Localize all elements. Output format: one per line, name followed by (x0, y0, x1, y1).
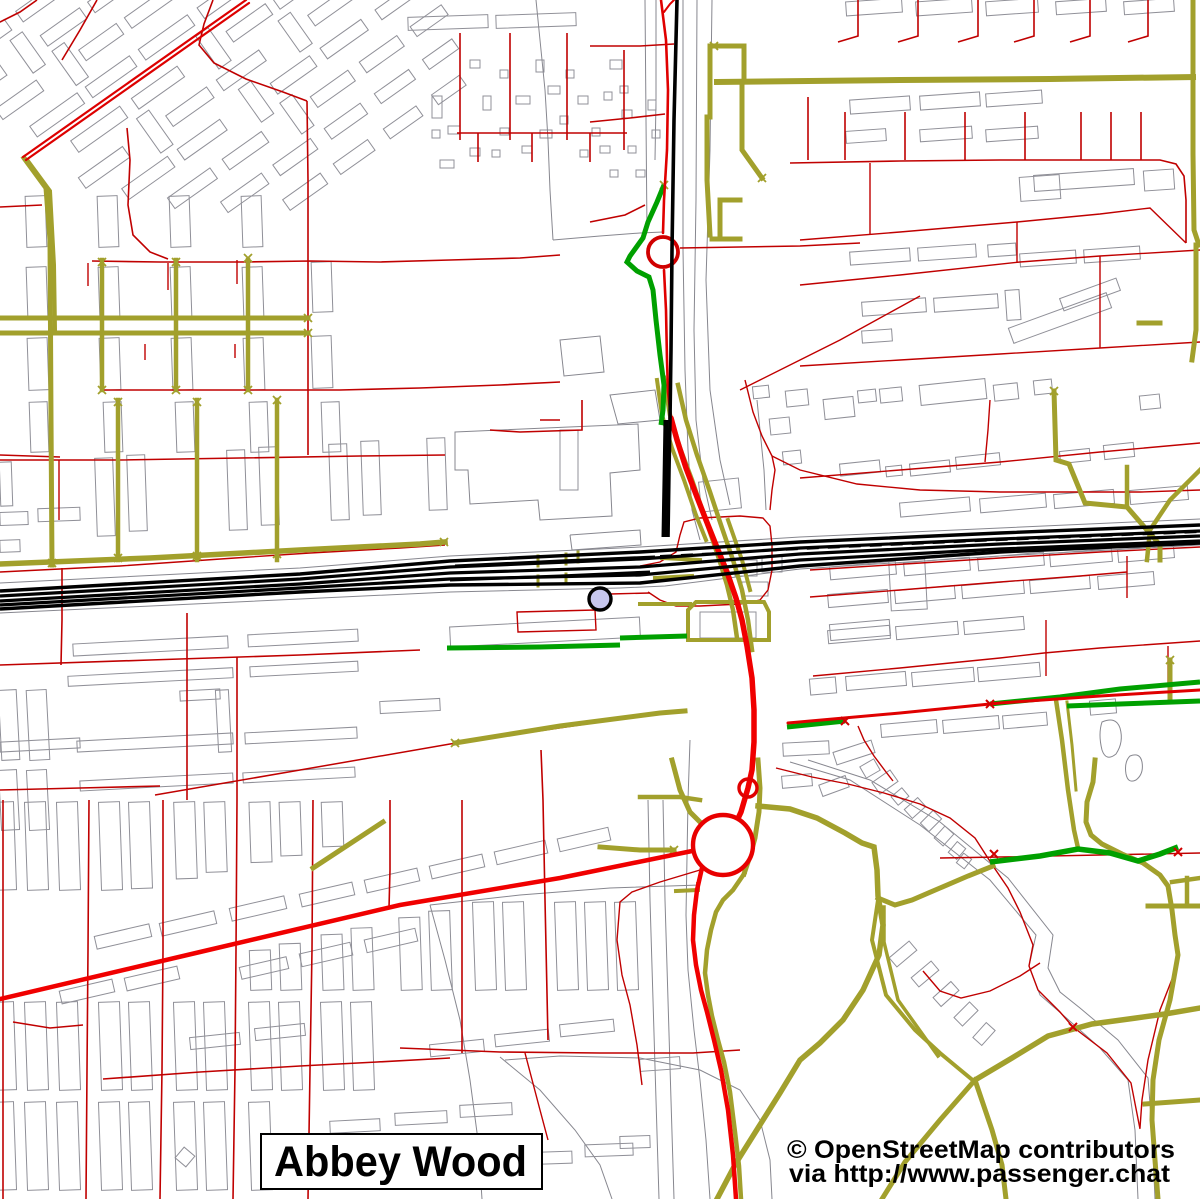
svg-text:Abbey Wood: Abbey Wood (274, 1138, 527, 1186)
svg-text:via http://www.passenger.chat: via http://www.passenger.chat (789, 1160, 1171, 1188)
